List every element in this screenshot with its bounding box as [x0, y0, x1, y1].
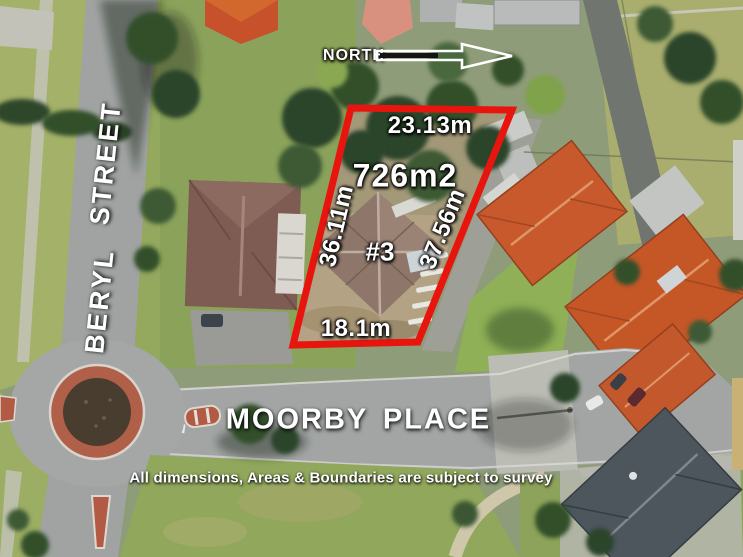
street-name-moorby: MOORBY [226, 404, 369, 437]
lot-number: #3 [366, 237, 395, 268]
dimension-top: 23.13m [388, 112, 472, 140]
area-label: 726m2 [353, 158, 458, 195]
street-name-place: PLACE [383, 404, 491, 437]
parked-car [201, 314, 223, 327]
grey-shed-roof [494, 0, 580, 25]
disclaimer-text: All dimensions, Areas & Boundaries are s… [129, 470, 552, 487]
dimension-bottom: 18.1m [321, 315, 392, 343]
aerial-property-screenshot: NORTH 23.13m 726m2 36.11m 37.56m #3 18.1… [0, 0, 743, 557]
maroon-roof-house [185, 180, 307, 310]
north-arrow-icon [374, 41, 516, 71]
